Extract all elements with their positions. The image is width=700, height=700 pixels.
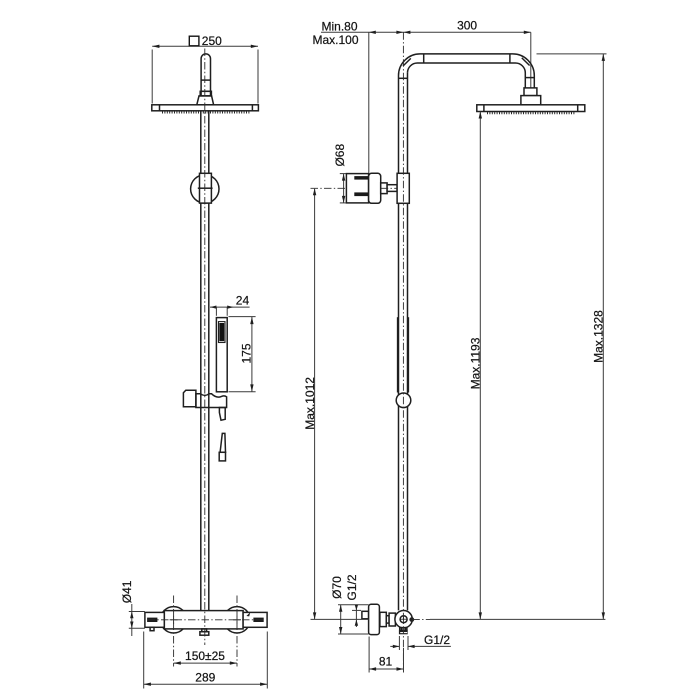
svg-text:G1/2: G1/2 [345, 574, 359, 600]
svg-text:G1/2: G1/2 [424, 633, 450, 647]
svg-text:Max.1328: Max.1328 [592, 310, 606, 363]
svg-text:Min.80: Min.80 [322, 20, 358, 34]
svg-text:Ø41: Ø41 [120, 580, 134, 603]
svg-text:175: 175 [239, 343, 253, 363]
svg-text:150±25: 150±25 [185, 649, 225, 663]
svg-text:289: 289 [195, 670, 215, 684]
svg-text:24: 24 [236, 293, 250, 307]
svg-text:Max.100: Max.100 [313, 33, 359, 47]
svg-text:Ø68: Ø68 [333, 144, 347, 167]
svg-text:250: 250 [202, 34, 222, 48]
svg-text:Ø70: Ø70 [330, 576, 344, 599]
svg-text:300: 300 [457, 19, 477, 33]
svg-text:81: 81 [379, 655, 393, 669]
svg-text:Max.1193: Max.1193 [469, 337, 483, 389]
svg-text:Max.1012: Max.1012 [303, 377, 317, 430]
